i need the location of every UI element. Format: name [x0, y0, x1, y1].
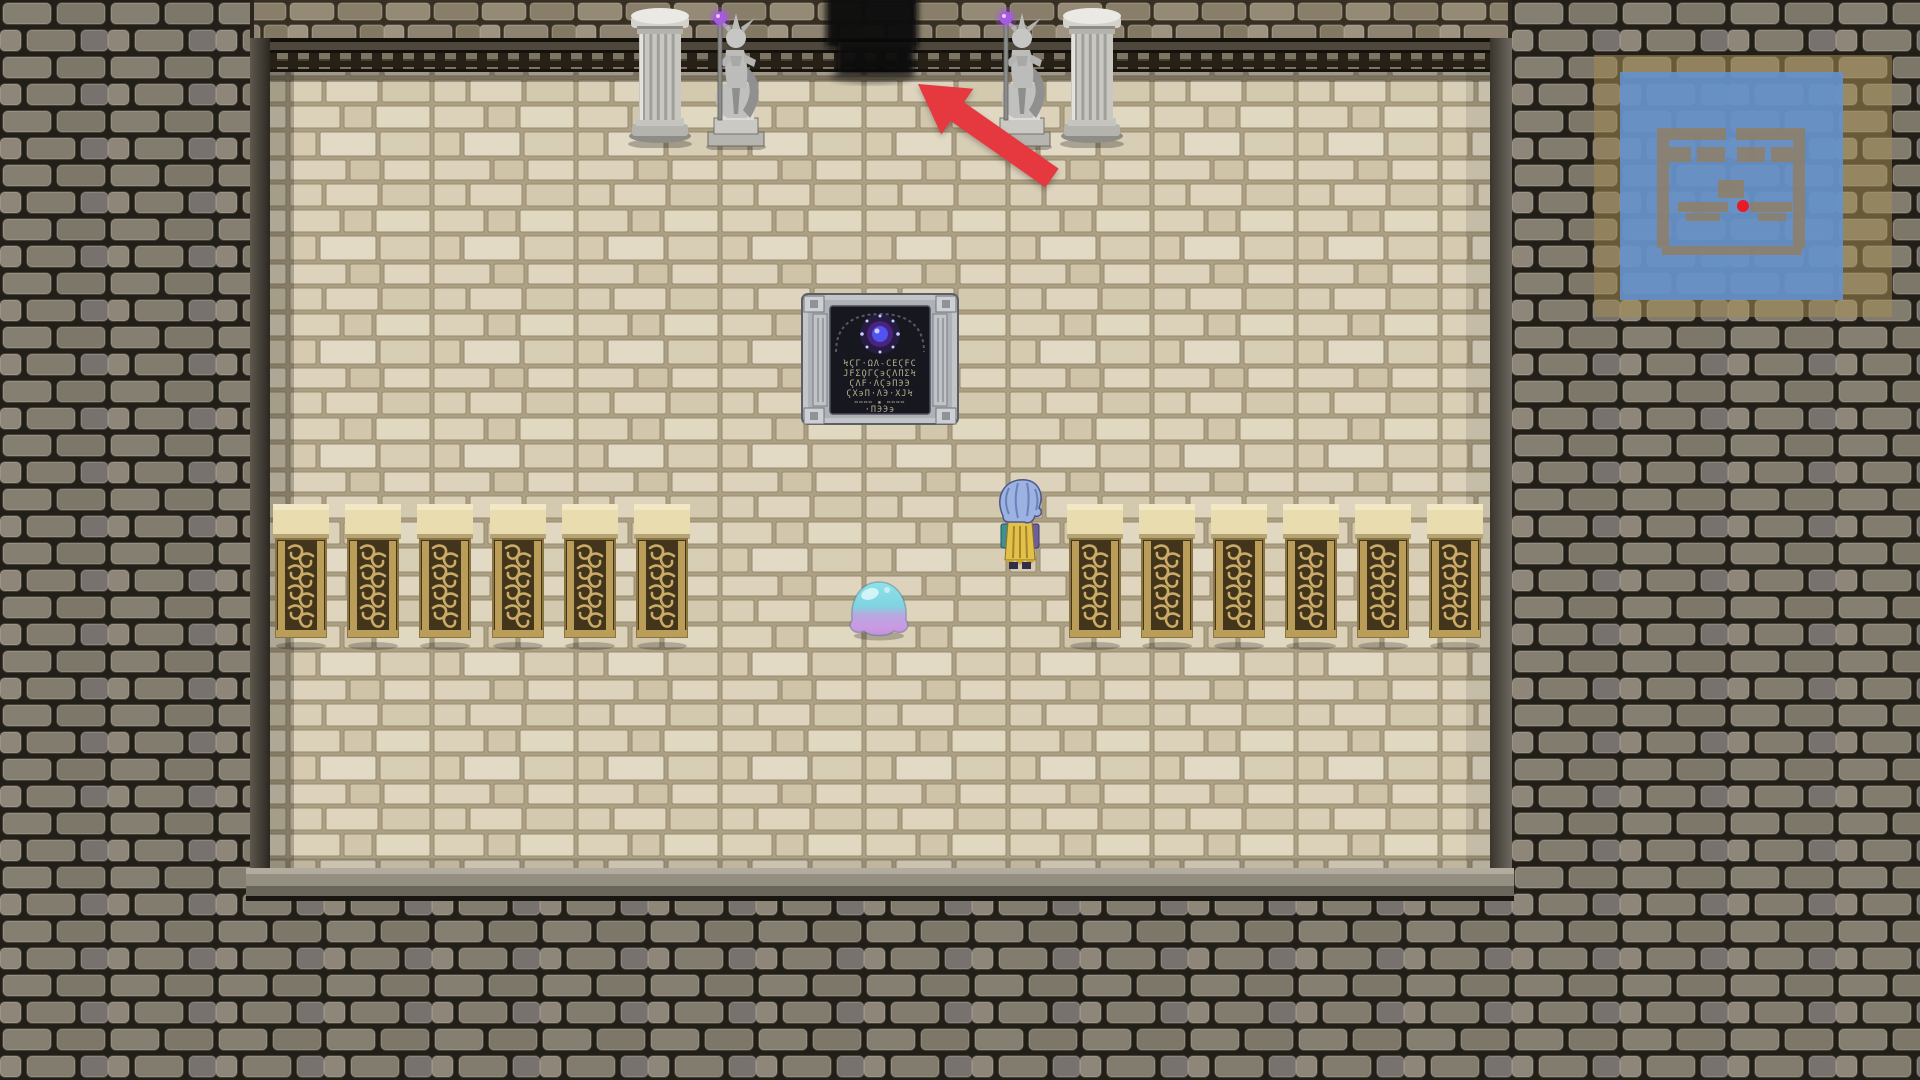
minimap-player-dot	[1737, 200, 1749, 212]
minimap	[1594, 55, 1892, 317]
rune-line: ·ΠЭЭ϶	[865, 405, 896, 415]
wall-banner	[1067, 504, 1123, 652]
wall-banner	[490, 504, 546, 652]
wall-banner	[562, 504, 618, 652]
minimap-area	[1620, 72, 1843, 300]
player-character	[993, 474, 1047, 570]
rune-line: ϚΧ϶Π·ΛЭ·ΧЈϞ	[846, 389, 913, 399]
rune-line: ϚΛϜ·ΛϚ϶ΠЭЭ	[849, 379, 910, 389]
tablet-orb-icon	[860, 314, 900, 354]
wall-banner	[1355, 504, 1411, 652]
wall-banner	[1139, 504, 1195, 652]
wall-banner	[273, 504, 329, 652]
pillar-left	[624, 2, 696, 148]
wall-banner	[1283, 504, 1339, 652]
rune-line: ЈϜΣϘΓϚ϶ϚΛΠΣϞ	[843, 369, 916, 379]
statue-left	[698, 0, 774, 150]
rune-line: ϞϚΓ·ΩΛ-ϹΕϚϜϹ	[843, 359, 916, 369]
wall-banner	[417, 504, 473, 652]
slime-creature[interactable]	[840, 570, 918, 642]
game-viewport: ϞϚΓ·ΩΛ-ϹΕϚϜϹ ЈϜΣϘΓϚ϶ϚΛΠΣϞ ϚΛϜ·ΛϚ϶ΠЭЭ ϚΧ϶…	[0, 0, 1920, 1080]
wall-banner	[1211, 504, 1267, 652]
wall-banner	[345, 504, 401, 652]
wall-banner	[634, 504, 690, 652]
stone-tablet[interactable]: ϞϚΓ·ΩΛ-ϹΕϚϜϹ ЈϜΣϘΓϚ϶ϚΛΠΣϞ ϚΛϜ·ΛϚ϶ΠЭЭ ϚΧ϶…	[800, 292, 960, 428]
minimap-room-outline	[1657, 128, 1805, 255]
annotation-arrow-icon	[875, 48, 1075, 198]
wall-banner	[1427, 504, 1483, 652]
